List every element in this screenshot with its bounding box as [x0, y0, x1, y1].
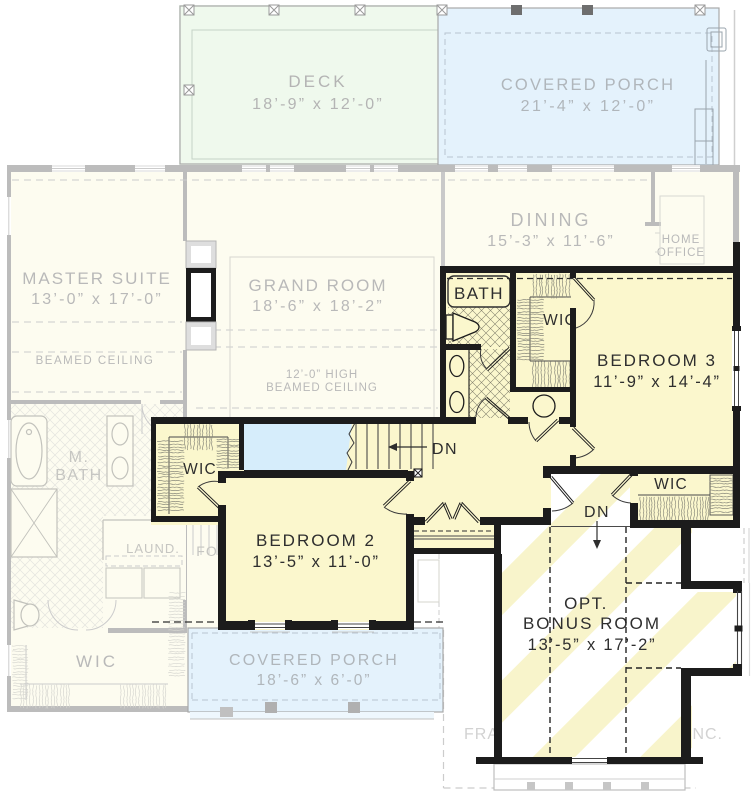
svg-text:18’-6” x 18’-2”: 18’-6” x 18’-2”: [252, 298, 384, 315]
svg-text:11’-9” x 14’-4”: 11’-9” x 14’-4”: [593, 373, 721, 391]
svg-text:15’-3” x 11’-6”: 15’-3” x 11’-6”: [487, 233, 615, 250]
svg-text:LAUND.: LAUND.: [126, 541, 180, 556]
svg-text:12’-0” HIGH: 12’-0” HIGH: [286, 369, 358, 381]
svg-text:MASTER SUITE: MASTER SUITE: [22, 269, 172, 288]
svg-text:DECK: DECK: [288, 72, 347, 91]
svg-text:COVERED PORCH: COVERED PORCH: [501, 76, 675, 94]
svg-text:BONUS ROOM: BONUS ROOM: [523, 614, 661, 633]
svg-text:FO: FO: [196, 543, 217, 559]
svg-text:21’-4” x 12’-0”: 21’-4” x 12’-0”: [521, 98, 656, 115]
svg-text:18’-6” x 6’-0”: 18’-6” x 6’-0”: [257, 672, 372, 689]
svg-text:DINING: DINING: [511, 210, 592, 230]
svg-text:BATH: BATH: [55, 467, 102, 484]
svg-text:WIC: WIC: [76, 652, 118, 671]
svg-text:OFFICE: OFFICE: [657, 247, 705, 259]
svg-text:OPT.: OPT.: [564, 594, 608, 613]
svg-text:HOME: HOME: [662, 234, 701, 246]
svg-text:DN: DN: [584, 504, 610, 521]
svg-text:WIC: WIC: [654, 476, 688, 493]
svg-text:13’-5” x 17’-2”: 13’-5” x 17’-2”: [528, 636, 657, 654]
svg-text:BEDROOM 2: BEDROOM 2: [256, 531, 376, 550]
svg-text:BATH: BATH: [454, 284, 504, 303]
svg-text:FRA: FRA: [464, 726, 499, 743]
svg-text:GRAND ROOM: GRAND ROOM: [249, 276, 388, 295]
svg-text:BEAMED CEILING: BEAMED CEILING: [36, 355, 155, 367]
svg-text:13’-0” x 17’-0”: 13’-0” x 17’-0”: [31, 291, 163, 308]
svg-text:BEAMED CEILING: BEAMED CEILING: [266, 382, 378, 394]
svg-text:13’-5” x 11’-0”: 13’-5” x 11’-0”: [252, 553, 380, 571]
svg-text:BEDROOM 3: BEDROOM 3: [597, 351, 717, 370]
svg-text:COVERED PORCH: COVERED PORCH: [229, 652, 399, 669]
svg-text:DN: DN: [432, 441, 458, 458]
svg-text:18’-9” x 12’-0”: 18’-9” x 12’-0”: [252, 96, 384, 113]
svg-text:M.: M.: [69, 449, 90, 466]
svg-text:INC.: INC.: [687, 726, 723, 743]
svg-text:WIC: WIC: [183, 461, 217, 478]
